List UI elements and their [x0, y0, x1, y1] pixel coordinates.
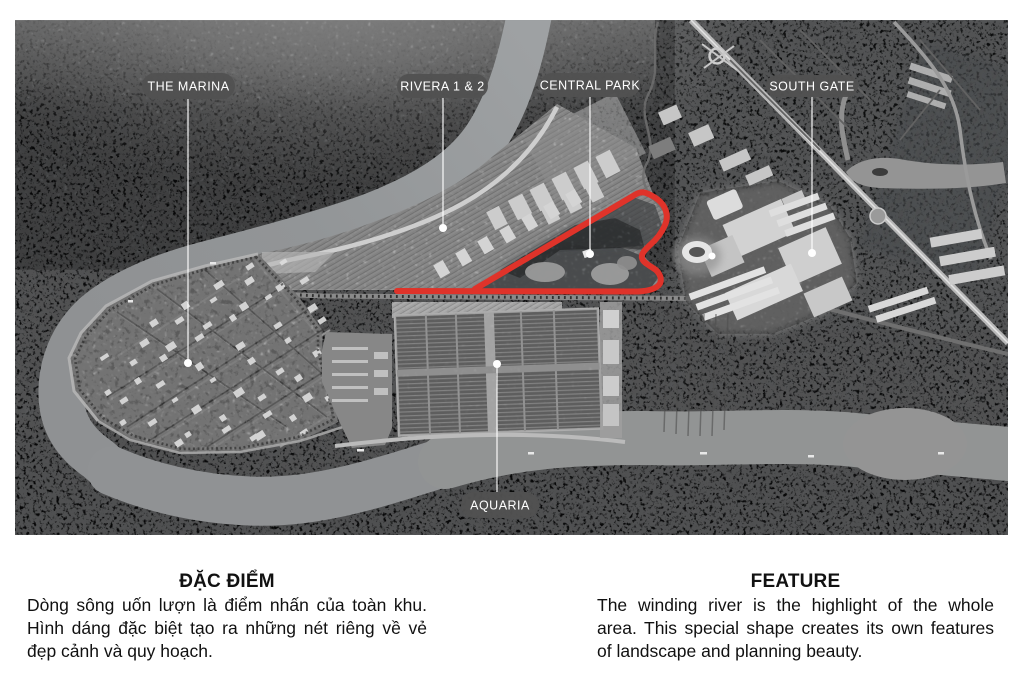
svg-text:THE MARINA: THE MARINA	[147, 80, 229, 94]
svg-text:RIVERA 1 & 2: RIVERA 1 & 2	[400, 80, 485, 94]
svg-text:SOUTH GATE: SOUTH GATE	[769, 80, 854, 94]
svg-text:AQUARIA: AQUARIA	[470, 499, 530, 513]
svg-text:CENTRAL PARK: CENTRAL PARK	[540, 79, 641, 93]
